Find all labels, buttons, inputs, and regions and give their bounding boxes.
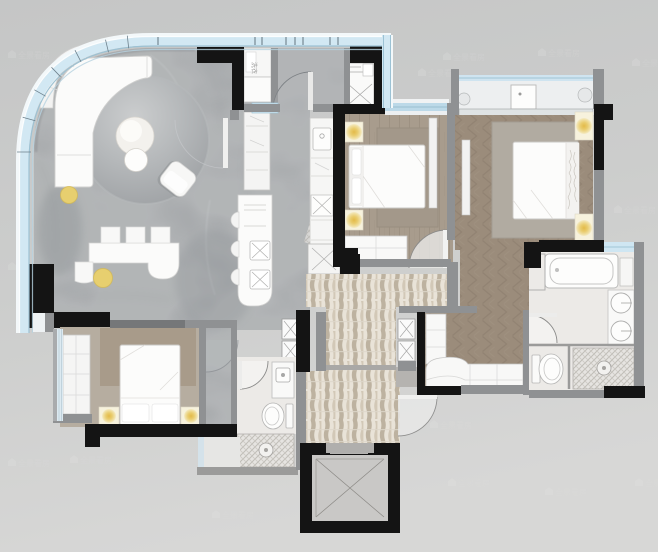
svg-text:洗衣: 洗衣 [250,62,258,74]
